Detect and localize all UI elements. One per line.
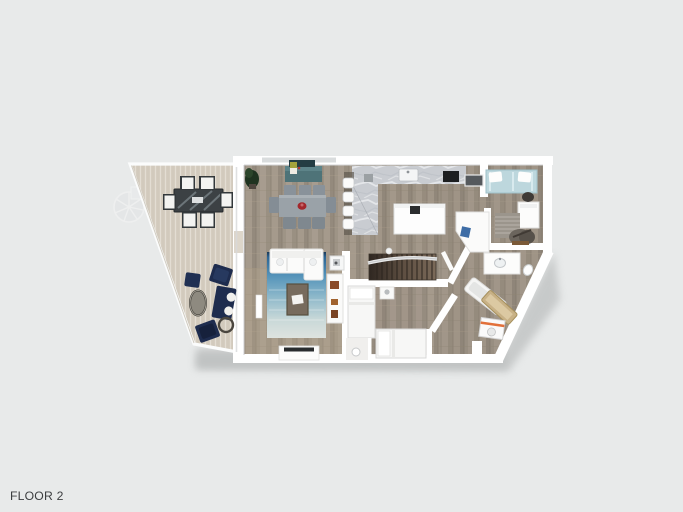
svg-text:FLOOR 2: FLOOR 2 <box>10 489 64 503</box>
